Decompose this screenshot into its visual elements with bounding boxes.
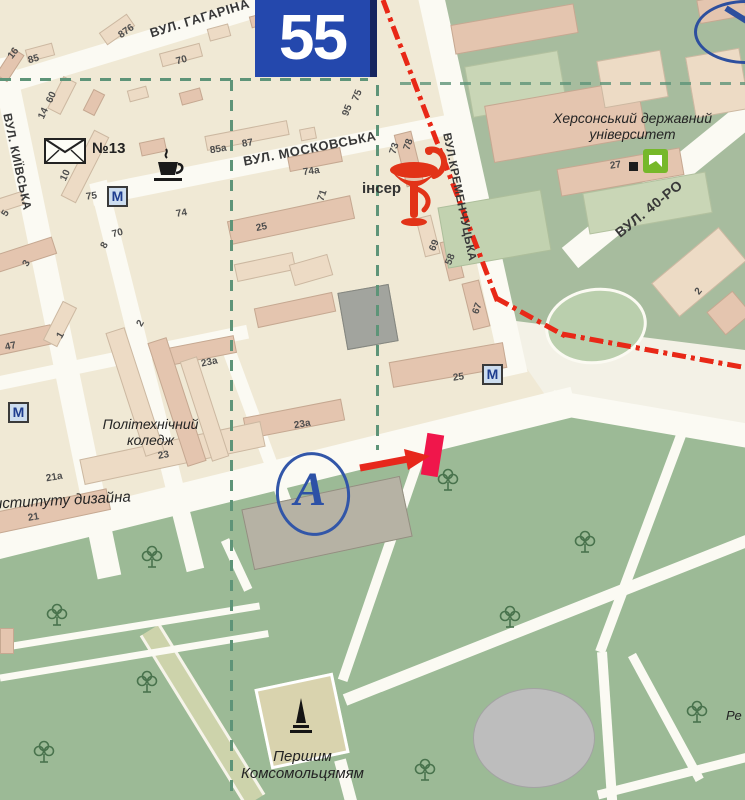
building-number: 58: [443, 252, 457, 266]
building-number: 10: [58, 168, 73, 183]
building-number: 876: [116, 22, 136, 41]
building-number: 75: [85, 190, 98, 202]
building-number: 21: [27, 511, 40, 524]
building-number: 95: [340, 103, 354, 117]
building-number: 5: [0, 208, 12, 218]
building-number: 16: [6, 46, 22, 62]
building-number: 60: [44, 90, 59, 105]
building-number: 25: [255, 221, 268, 234]
building-number: 87: [241, 137, 254, 150]
building-number: 2: [135, 318, 147, 328]
building-number: 67: [470, 301, 484, 315]
building-number: 27: [609, 159, 622, 171]
building-number: 23: [157, 449, 170, 462]
building-number: 70: [175, 54, 189, 68]
building-number: 74а: [302, 165, 320, 178]
building-number: 78: [402, 138, 416, 152]
building-number: 69: [427, 238, 441, 252]
building-number: 85: [27, 53, 41, 67]
building-number: 14: [36, 106, 51, 121]
building-number: 23а: [293, 418, 311, 432]
building-number: 8: [99, 240, 111, 250]
building-number: 73: [388, 142, 402, 156]
building-number: 85а: [209, 143, 227, 157]
building-number: 23а: [200, 355, 219, 369]
building-number: 21а: [45, 471, 63, 485]
building-number: 25: [452, 371, 465, 383]
building-number: 71: [316, 189, 330, 203]
building-number: 75: [350, 88, 364, 102]
building-numbers-layer: 8761685706014107585а877595737874а7169586…: [0, 0, 745, 800]
building-number: 47: [4, 340, 17, 353]
building-number: 70: [111, 227, 124, 240]
building-number: 2: [693, 286, 705, 297]
building-number: 3: [21, 258, 33, 268]
map-canvas[interactable]: 55 ВУЛ. ГАГАРІНА ВУЛ. КИЇВСЬКА ВУЛ. МОСК…: [0, 0, 745, 800]
building-number: 1: [55, 330, 67, 340]
building-number: 74: [175, 207, 188, 220]
